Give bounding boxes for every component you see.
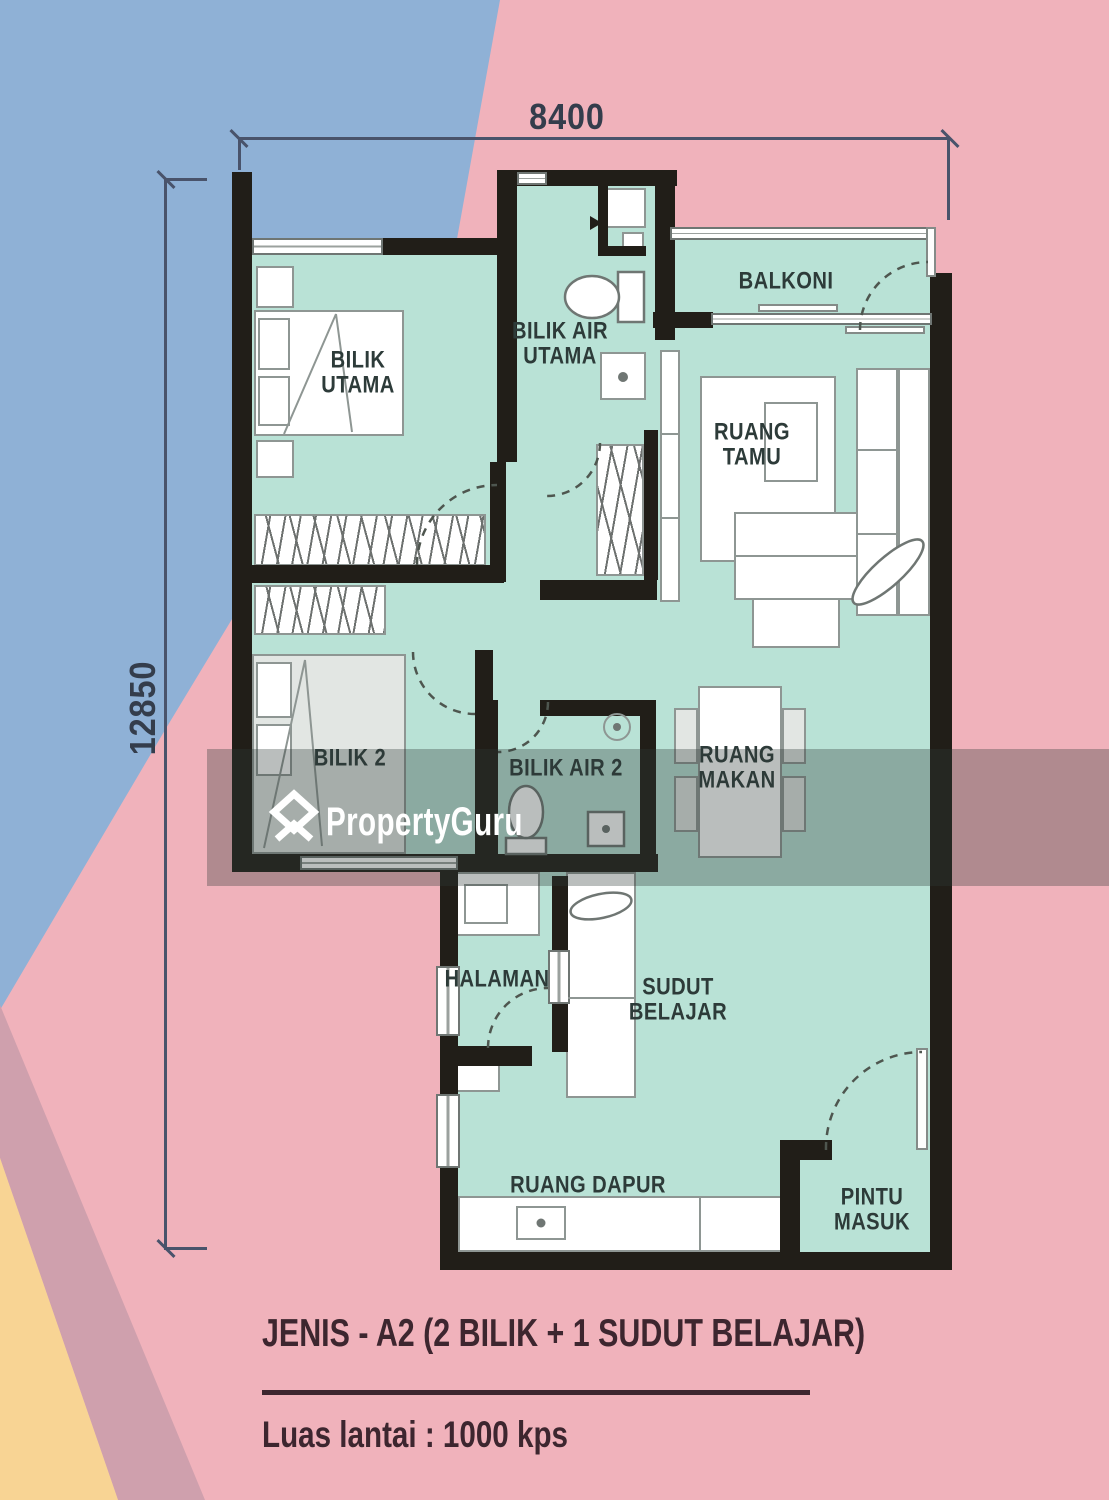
dimension-extension [165, 178, 207, 181]
wall [644, 430, 658, 580]
room-label-line: UTAMA [512, 344, 608, 369]
room-label-bilik-air-utama: BILIK AIR UTAMA [512, 319, 608, 370]
watermark-brand-text: PropertyGuru [326, 800, 523, 845]
room-label-line: BILIK AIR [512, 319, 608, 344]
wall [232, 565, 504, 583]
unit-type-code: JENIS - A2 [262, 1312, 415, 1355]
wall [598, 186, 608, 252]
sliding-door-panel [845, 326, 925, 334]
wall [440, 1252, 952, 1270]
window [517, 172, 547, 185]
room-label-balkoni: BALKONI [739, 268, 834, 293]
washer-halaman-inner [464, 884, 508, 924]
room-label-line: BELAJAR [629, 1000, 727, 1025]
room-label-pintu-masuk: PINTU MASUK [834, 1185, 910, 1236]
wall [540, 580, 657, 600]
side-table [752, 598, 840, 648]
room-label-line: RUANG [714, 420, 790, 445]
pillow [258, 376, 290, 426]
kitchen-sink [516, 1206, 566, 1240]
room-label-line: PINTU [834, 1185, 910, 1210]
window [252, 238, 383, 255]
room-label-line: BALKONI [739, 268, 834, 293]
sofa-chaise [734, 512, 858, 600]
dimension-extension [947, 140, 950, 220]
dimension-height-value: 12850 [122, 661, 164, 756]
room-label-line: MASUK [834, 1210, 910, 1235]
window [436, 1094, 460, 1168]
propertyguru-logo-icon [268, 789, 320, 847]
room-label-line: TAMU [714, 445, 790, 470]
entry-door-leaf [916, 1048, 928, 1150]
room-label-line: RUANG DAPUR [510, 1172, 666, 1197]
sliding-door-panel [758, 304, 838, 312]
wall [440, 1046, 532, 1066]
room-label-sudut-belajar: SUDUT BELAJAR [629, 975, 727, 1026]
nightstand [256, 440, 294, 478]
wall [552, 876, 568, 950]
wardrobe-master [254, 514, 486, 566]
sofa-seat [856, 368, 898, 616]
unit-type-title: JENIS - A2 (2 BILIK + 1 SUDUT BELAJAR) [262, 1312, 865, 1356]
pillow [258, 318, 290, 370]
unit-type-detail: (2 BILIK + 1 SUDUT BELAJAR) [415, 1312, 865, 1355]
wardrobe-bilik2 [254, 585, 386, 635]
dimension-extension [165, 1247, 207, 1250]
wall [540, 700, 656, 716]
kitchen-counter [458, 1196, 782, 1252]
wall [653, 312, 713, 328]
dimension-width-value: 8400 [529, 96, 605, 138]
window [548, 950, 570, 1004]
balcony-glass-corner [926, 227, 936, 277]
caption-divider-line [262, 1390, 810, 1395]
room-label-line: UTAMA [321, 373, 394, 398]
dimension-extension [238, 140, 241, 170]
room-label-line: HALAMAN [445, 966, 550, 991]
nightstand [256, 266, 294, 308]
room-label-bilik-utama: BILIK UTAMA [321, 348, 394, 399]
dimension-line-height [164, 178, 167, 1250]
room-label-line: SUDUT [629, 975, 727, 1000]
wall [552, 1004, 568, 1052]
shower-closet [596, 444, 644, 576]
room-label-halaman: HALAMAN [445, 966, 550, 991]
pillow [256, 662, 292, 718]
sliding-door-glass [711, 313, 932, 325]
wall [490, 462, 506, 582]
room-label-ruang-dapur: RUANG DAPUR [510, 1172, 666, 1197]
floor-area-text: Luas lantai : 1000 kps [262, 1414, 568, 1456]
wall [383, 238, 499, 255]
wall [598, 246, 646, 256]
wall [780, 1140, 832, 1160]
tall-cabinet [660, 350, 680, 602]
floorplan-image: BILIK UTAMA BILIK AIR UTAMA BALKONI RUAN… [0, 0, 1109, 1500]
daybed-study [566, 872, 636, 1098]
sofa-back [898, 368, 930, 616]
balcony-glass-wall [670, 227, 933, 240]
washer [606, 188, 646, 228]
room-label-ruang-tamu: RUANG TAMU [714, 420, 790, 471]
room-label-line: BILIK [321, 348, 394, 373]
